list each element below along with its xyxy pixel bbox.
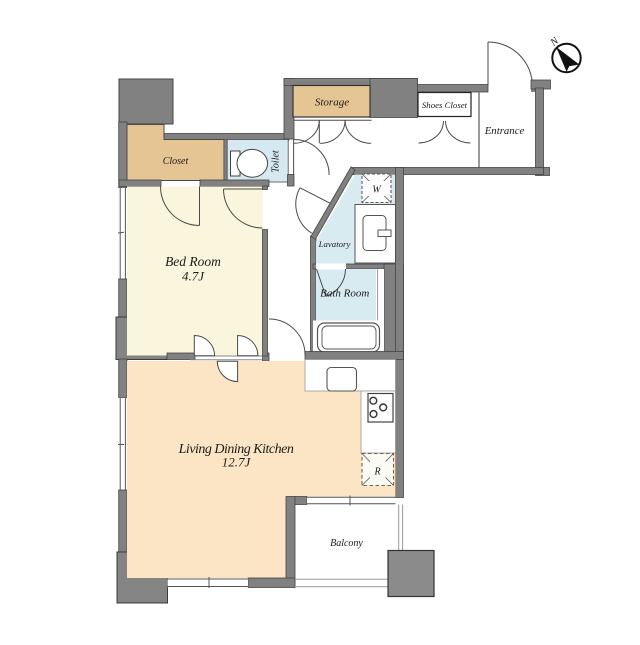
svg-text:Shoes Closet: Shoes Closet: [422, 100, 468, 110]
svg-text:R: R: [373, 467, 380, 478]
svg-text:Bed Room: Bed Room: [165, 254, 221, 269]
svg-text:Toilet: Toilet: [271, 150, 282, 173]
svg-text:Balcony: Balcony: [330, 538, 363, 549]
svg-text:Lavatory: Lavatory: [318, 239, 351, 249]
svg-text:4.7J: 4.7J: [182, 269, 205, 284]
svg-text:N: N: [548, 35, 562, 49]
svg-text:Storage: Storage: [315, 97, 349, 109]
svg-text:Bath Room: Bath Room: [320, 288, 369, 300]
svg-text:Entrance: Entrance: [484, 125, 525, 137]
svg-text:12.7J: 12.7J: [222, 455, 252, 470]
svg-text:Closet: Closet: [163, 156, 189, 167]
